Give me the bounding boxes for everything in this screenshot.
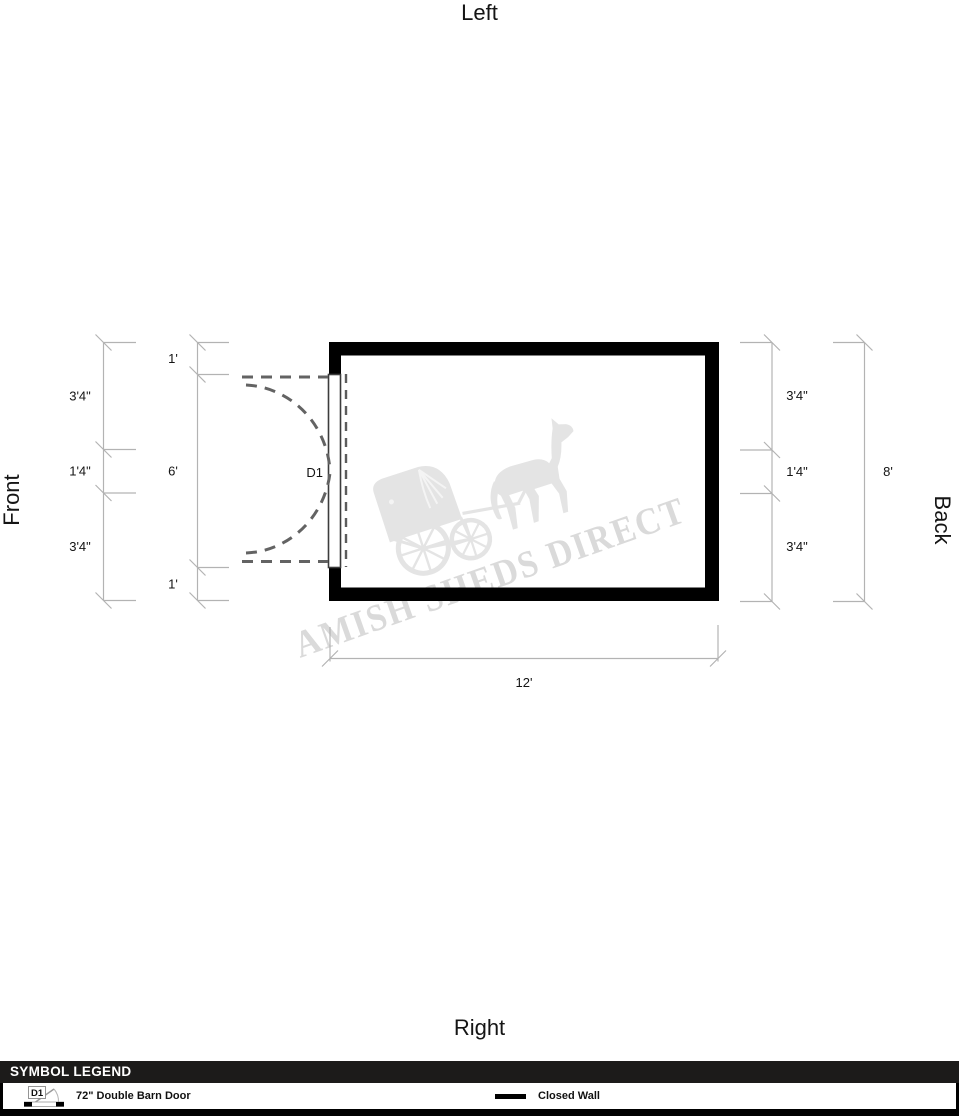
door-leaf (329, 375, 341, 568)
legend-item-closed-wall: Closed Wall (495, 1083, 600, 1109)
legend-header: SYMBOL LEGEND (0, 1061, 959, 1083)
legend-item-door: D1 72" Double Barn Door (24, 1083, 191, 1109)
floor-plan-page: Left Right Front Back (0, 0, 959, 1116)
dim-bottom: 12' (516, 675, 533, 690)
legend-door-label: 72" Double Barn Door (76, 1090, 191, 1102)
double-barn-door-icon: D1 (24, 1085, 64, 1108)
dim-left-inner-3: 1' (168, 577, 178, 592)
legend-door-tag: D1 (31, 1088, 44, 1099)
door-d1: D1 (242, 374, 346, 568)
watermark-text: AMISH SHEDS DIRECT (289, 489, 691, 666)
floor-plan-drawing: AMISH SHEDS DIRECT D1 (0, 0, 959, 1116)
legend-body: D1 72" Double Barn Door Closed Wall (0, 1083, 959, 1109)
symbol-legend: SYMBOL LEGEND D1 72" Double Barn Door Cl… (0, 1061, 959, 1116)
dim-left-outer-2: 1'4" (69, 464, 91, 479)
dim-right-inner-3: 3'4" (786, 539, 808, 554)
dim-right-inner-1: 3'4" (786, 388, 808, 403)
legend-title: SYMBOL LEGEND (10, 1064, 131, 1079)
legend-wall-label: Closed Wall (538, 1090, 600, 1102)
dimension-right-inner (740, 335, 780, 610)
dimension-left-outer (96, 335, 137, 609)
closed-wall-icon (495, 1094, 526, 1099)
dim-left-inner-1: 1' (168, 351, 178, 366)
dim-right-outer: 8' (883, 464, 893, 479)
watermark: AMISH SHEDS DIRECT (289, 413, 691, 666)
dim-left-inner-2: 6' (168, 464, 178, 479)
dim-left-outer-3: 3'4" (69, 539, 91, 554)
dimension-right-outer (833, 335, 873, 610)
legend-bottom-bar (0, 1109, 959, 1116)
door-tag: D1 (306, 465, 323, 480)
dimension-left-inner (190, 335, 230, 609)
dim-right-inner-2: 1'4" (786, 464, 808, 479)
dim-left-outer-1: 3'4" (69, 389, 91, 404)
